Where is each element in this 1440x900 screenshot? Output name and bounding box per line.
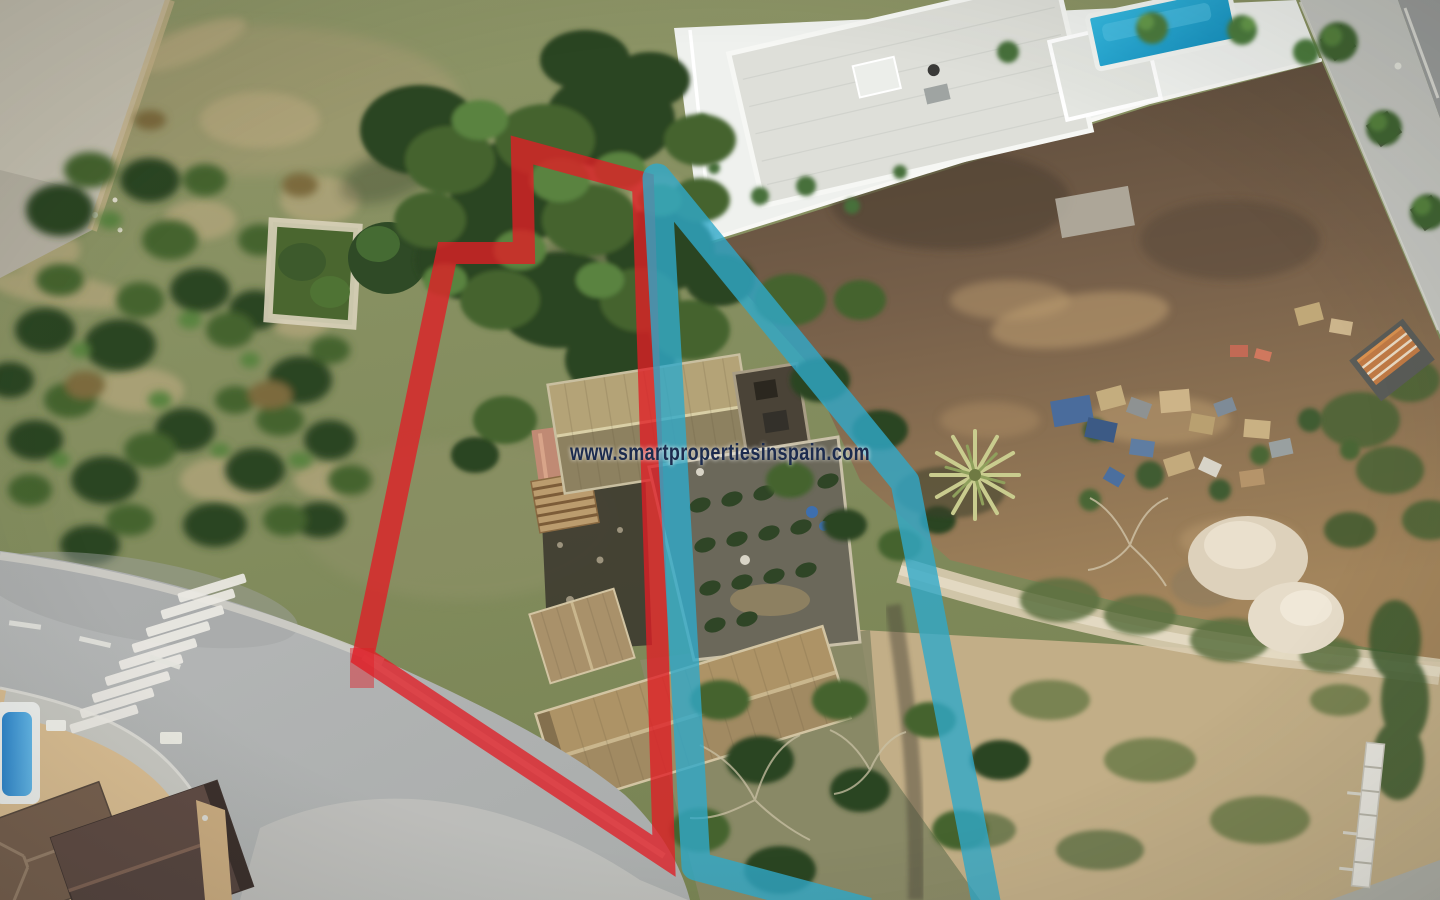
aerial-photo: www.smartpropertiesinspain.com www.smart… bbox=[0, 0, 1440, 900]
vignette bbox=[0, 0, 1440, 900]
